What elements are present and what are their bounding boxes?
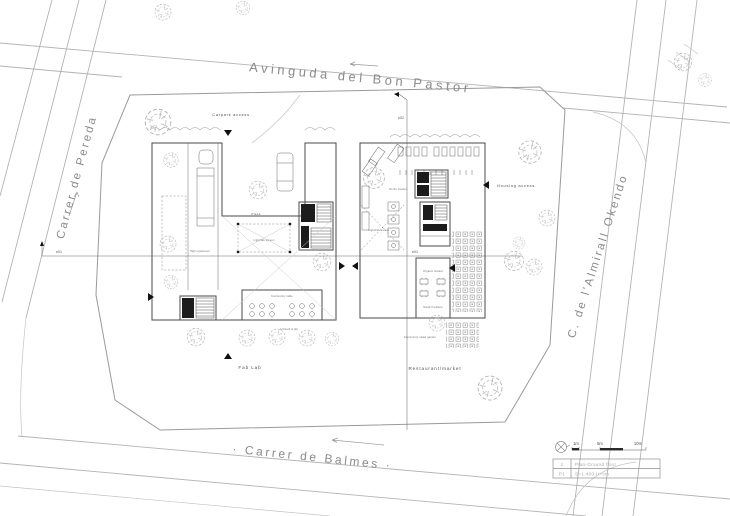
access-arrows [148, 130, 489, 359]
legend-title-block: 1 Plan-Ground floor P1 S=1:400 U=cm [553, 459, 660, 478]
stair-core-upper [299, 202, 333, 250]
right-building-restaurant-market: Herbs market Light/fab ac [360, 135, 485, 349]
fab-lab-label: Fab Lab [238, 365, 261, 370]
light-fab-screen-label: Light/fab screen [254, 239, 275, 242]
small-fireplace-label: Small fireplace [423, 306, 443, 309]
site-parcel-boundary [96, 87, 565, 430]
housing-access-label: Housing access [497, 183, 535, 188]
site-plan-drawing: e01 e01 e02 High equipment [0, 0, 730, 516]
entry-arrow-icon [352, 262, 358, 270]
title-block-sheet-id: P1 [559, 472, 565, 477]
stair-core-market-mid [420, 202, 450, 246]
salad-garden-beds [446, 322, 479, 348]
restaurant-market-label: Restaurant/market [408, 366, 461, 371]
legend-scale-bar: 1m 5m 10m [572, 441, 646, 450]
legend-north [556, 442, 571, 453]
title-block-scale: S=1:400 U=cm [575, 472, 609, 477]
stall-column [388, 202, 399, 250]
scale-tick-1m: 1m [573, 441, 579, 446]
herbs-market-label: Herbs market [389, 188, 407, 191]
title-block-plan-name: Plan-Ground floor [575, 462, 617, 467]
community-table-room: Community table [242, 290, 322, 320]
light-fab-access-label: Light/fab access [368, 229, 390, 232]
truck-symbol [197, 150, 214, 226]
one-way-arrow-icon [69, 62, 384, 445]
community-salad-garden-label: Community salad garden [404, 336, 437, 339]
trees [145, 1, 711, 400]
carpark-arrow-icon [224, 130, 232, 136]
stair-core-lower [180, 296, 216, 320]
high-equipment-label: High equipment [190, 250, 210, 253]
street-right-road [566, 0, 698, 516]
entry-arrow-icon [339, 262, 345, 270]
scale-tick-5m: 5m [597, 441, 603, 446]
section-label-e02: e02 [398, 116, 404, 120]
restaurant-seating-grid [452, 231, 483, 312]
car-symbol [277, 153, 293, 191]
plaza-label: Plaza [251, 212, 260, 216]
stair-core-market-upper [415, 170, 448, 198]
fab-lab-arrow-icon [224, 353, 232, 359]
section-label-e01-right: e01 [412, 250, 418, 254]
community-table-label: Community table [271, 295, 293, 298]
art-lab-label: Art/park & lab [280, 328, 298, 331]
light-fab-screen-area: Light/fab screen [237, 223, 291, 253]
carpark-access-label: Carpark access [212, 112, 250, 117]
housing-arrow-icon [483, 181, 489, 189]
scale-tick-10m: 10m [634, 441, 643, 446]
title-block-sheet-number: 1 [561, 462, 564, 467]
section-label-e01-left: e01 [56, 250, 62, 254]
light-fab-access-area: Light/fab access [361, 205, 404, 250]
organic-market-label: Organic market [423, 270, 443, 273]
organic-market-room: Organic market Small fireplace [416, 258, 450, 318]
street-left-road [0, 0, 106, 437]
street-top-road [0, 43, 730, 143]
entry-arrow-icon [148, 293, 154, 301]
street-name-bottom: · Carrer de Balmes · [232, 442, 393, 473]
